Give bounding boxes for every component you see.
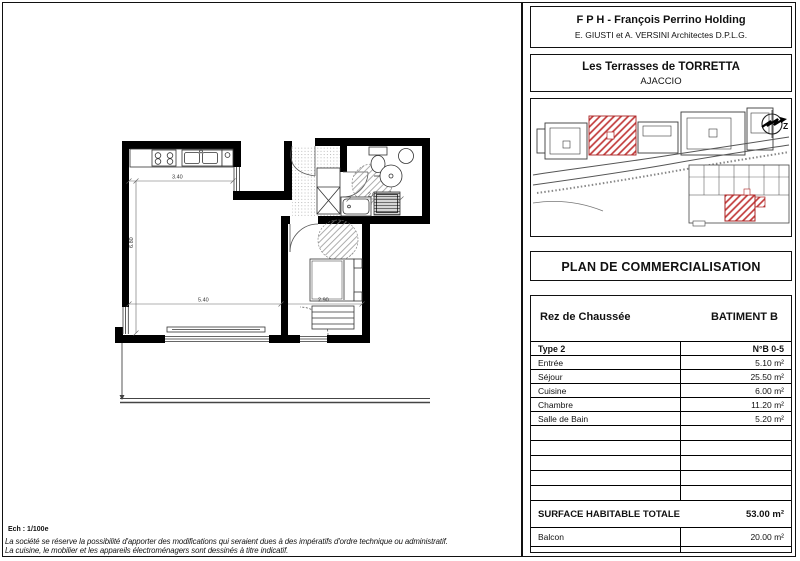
- table-header: Rez de Chaussée BATIMENT B: [531, 296, 791, 341]
- toilet: [369, 147, 387, 155]
- architects-name: E. GIUSTI et A. VERSINI Architectes D.P.…: [531, 30, 791, 40]
- table-row-empty: [531, 486, 791, 501]
- scale-note: Ech : 1/100e: [8, 526, 48, 533]
- building-outline: [638, 122, 678, 153]
- bedroom-furniture: [310, 220, 362, 329]
- washbasin: [380, 165, 402, 187]
- compass-label: Z: [783, 121, 788, 131]
- balcony-area: 20.00 m²: [681, 528, 791, 547]
- table-row-empty: [531, 471, 791, 486]
- table-row-type: Type 2 N°B 0-5: [531, 342, 791, 356]
- accessibility-circle: [318, 220, 358, 260]
- type-label: Type 2: [531, 342, 681, 356]
- dim-room-depth: 6.80: [129, 237, 135, 248]
- bathroom-fixtures: [341, 147, 414, 216]
- kitchen-counter: [130, 149, 233, 167]
- room-area: 5.10 m²: [681, 356, 791, 370]
- project-city: AJACCIO: [531, 76, 791, 87]
- room-label: Salle de Bain: [531, 412, 681, 426]
- room-area: 25.50 m²: [681, 370, 791, 384]
- table-row-empty: [531, 426, 791, 441]
- total-area: 53.00 m²: [746, 509, 784, 520]
- table-row: Salle de Bain 5.20 m²: [531, 412, 791, 426]
- balcony: [120, 343, 431, 403]
- room-area: 11.20 m²: [681, 398, 791, 412]
- disclaimer: La société se réserve la possibilité d'a…: [5, 538, 519, 555]
- room-label: Séjour: [531, 370, 681, 384]
- table-row: Séjour 25.50 m²: [531, 370, 791, 384]
- table-row-total: SURFACE HABITABLE TOTALE 53.00 m²: [531, 501, 791, 528]
- table-row-empty: [531, 547, 791, 554]
- table-row: Chambre 11.20 m²: [531, 398, 791, 412]
- washbasin: [399, 149, 414, 164]
- water-heater: [374, 192, 400, 215]
- table-row: Entrée 5.10 m²: [531, 356, 791, 370]
- disclaimer-line2: La cuisine, le mobilier et les appareils…: [5, 547, 519, 556]
- nightstand: [354, 292, 362, 301]
- dim-living-width: 5.40: [198, 298, 209, 304]
- dim-bath-width: 2.01: [368, 193, 378, 199]
- company-name: F P H - François Perrino Holding: [531, 14, 791, 26]
- room-area: 6.00 m²: [681, 384, 791, 398]
- table-row-empty: [531, 456, 791, 471]
- floor-plan: 3.40 6.80 5.40 2.90 2.01: [0, 0, 522, 561]
- dim-bedroom-width: 2.90: [318, 298, 329, 304]
- rooms-table: Type 2 N°B 0-5 Entrée 5.10 m² Séjour 25.…: [531, 341, 791, 553]
- room-label: Cuisine: [531, 384, 681, 398]
- table-row-empty: [531, 441, 791, 456]
- dim-kitchen-width: 3.40: [172, 175, 183, 181]
- dresser: [312, 306, 354, 329]
- key-plan-inset: [689, 165, 789, 226]
- project-name: Les Terrasses de TORRETTA: [531, 61, 791, 73]
- surface-table-box: Rez de Chaussée BATIMENT B Type 2 N°B 0-…: [530, 295, 792, 553]
- table-row: Cuisine 6.00 m²: [531, 384, 791, 398]
- site-plan: Z: [531, 99, 791, 236]
- room-label: Entrée: [531, 356, 681, 370]
- doc-title: PLAN DE COMMERCIALISATION: [531, 260, 791, 274]
- room-area: 5.20 m²: [681, 412, 791, 426]
- bed: [310, 259, 354, 301]
- unit-number: N°B 0-5: [681, 342, 791, 356]
- total-label: SURFACE HABITABLE TOTALE: [538, 509, 680, 520]
- table-row-balcony: Balcon 20.00 m²: [531, 528, 791, 547]
- room-label: Chambre: [531, 398, 681, 412]
- company-box: F P H - François Perrino Holding E. GIUS…: [530, 6, 792, 48]
- bathtub: [341, 197, 371, 216]
- nightstand: [354, 259, 362, 268]
- doc-title-box: PLAN DE COMMERCIALISATION: [530, 251, 792, 281]
- balcony-label: Balcon: [531, 528, 681, 547]
- closet: [317, 168, 340, 214]
- unit-highlighted: [725, 195, 755, 221]
- site-plan-box: Z: [530, 98, 792, 237]
- floor-label: Rez de Chaussée: [540, 311, 630, 323]
- building-label: BATIMENT B: [711, 311, 778, 323]
- project-box: Les Terrasses de TORRETTA AJACCIO: [530, 54, 792, 92]
